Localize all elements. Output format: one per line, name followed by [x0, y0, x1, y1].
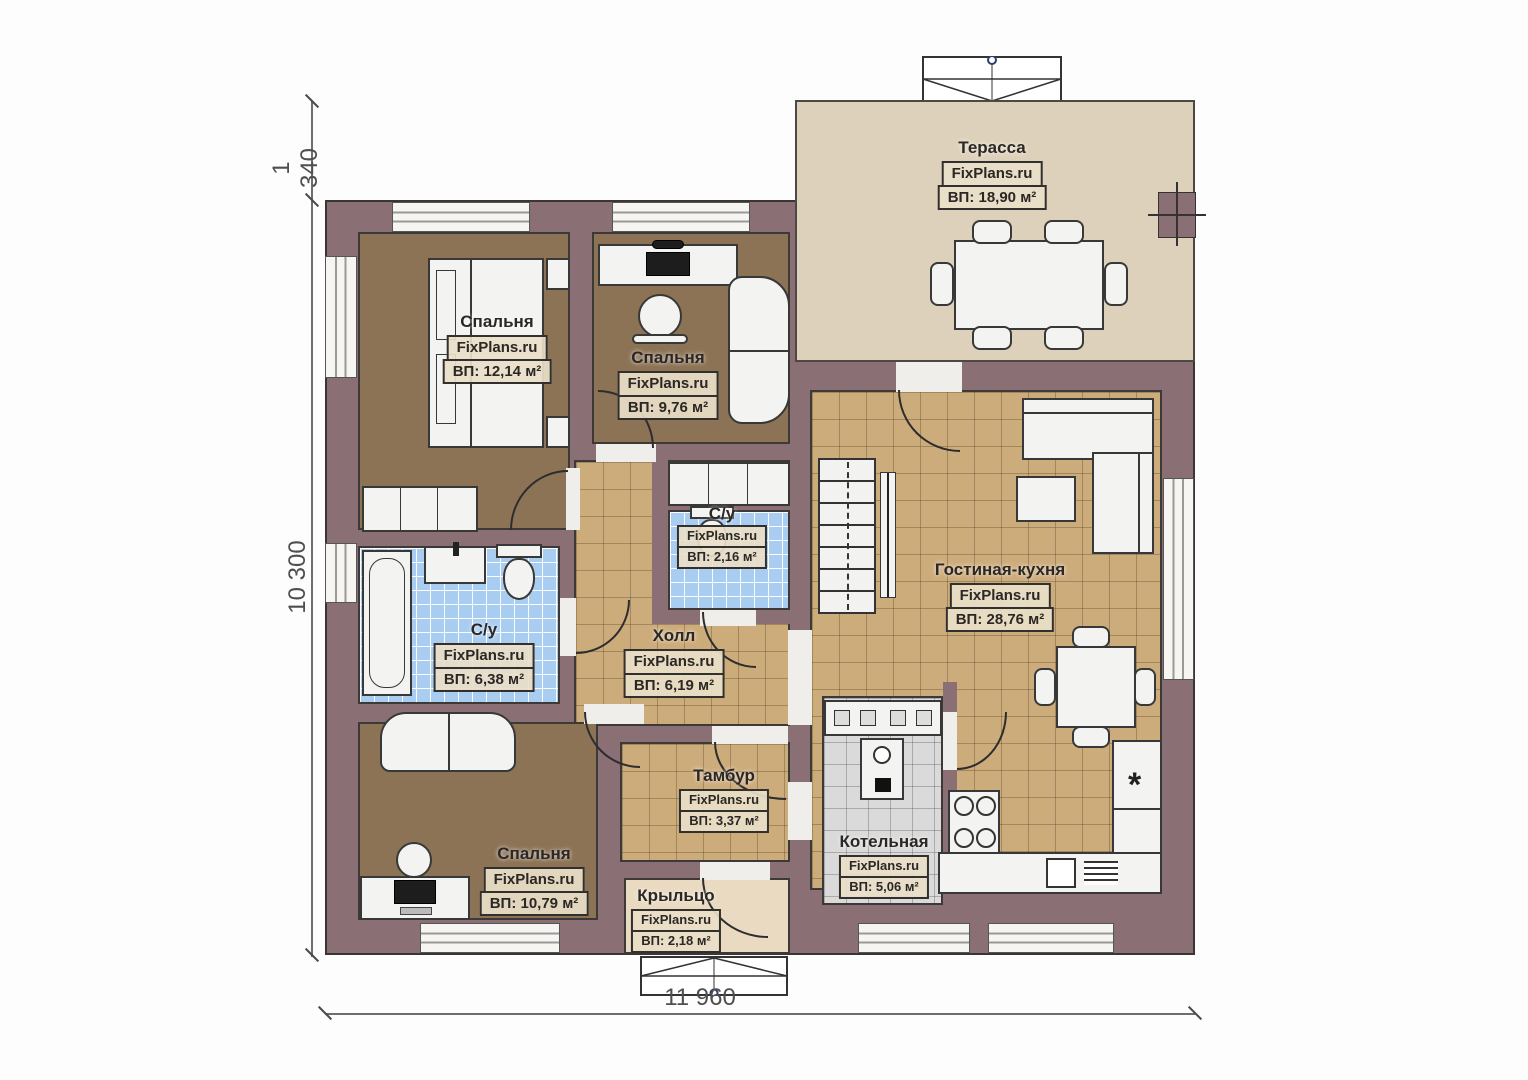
bathtub-inner: [369, 558, 405, 688]
window: [420, 923, 560, 953]
door-opening: [943, 712, 957, 770]
office-chair: [638, 294, 682, 338]
wall-segment: [652, 448, 668, 624]
terrace-chair: [1044, 220, 1084, 244]
terrace-chair: [930, 262, 954, 306]
room-area: ВП: 6,19 м²: [624, 673, 724, 699]
dish-rack: [1084, 861, 1118, 885]
room-label-hall: Холл FixPlans.ru ВП: 6,19 м²: [624, 626, 725, 698]
room-area: ВП: 12,14 м²: [443, 359, 552, 385]
door-opening: [896, 362, 962, 392]
dining-table: [1056, 646, 1136, 728]
fridge-symbol: *: [1128, 768, 1141, 802]
dining-chair: [1072, 626, 1110, 648]
window: [325, 256, 357, 378]
computer-monitor: [394, 880, 436, 904]
watermark: FixPlans.ru: [631, 909, 721, 932]
sofa-back-line: [1138, 454, 1140, 552]
room-label-bath2: С/у FixPlans.ru ВП: 2,16 м²: [677, 504, 767, 569]
room-name: Гостиная-кухня: [935, 560, 1065, 580]
room-label-bedroom2: Спальня FixPlans.ru ВП: 9,76 м²: [618, 348, 719, 420]
window: [858, 923, 970, 953]
wardrobe: [362, 486, 478, 532]
stove: [948, 790, 1000, 854]
room-area: ВП: 28,76 м²: [946, 607, 1055, 633]
nightstand: [546, 258, 570, 290]
room-area: ВП: 9,76 м²: [618, 395, 718, 421]
sofa-daybed: [728, 276, 790, 424]
terrace-chair: [1044, 326, 1084, 350]
counter-square: [860, 710, 876, 726]
passage-opening: [788, 782, 812, 840]
coffee-table: [1016, 476, 1076, 522]
terrace-chair: [972, 326, 1012, 350]
room-name: Терасса: [958, 138, 1025, 158]
counter-square: [916, 710, 932, 726]
watermark: FixPlans.ru: [677, 525, 767, 548]
room-label-living-kitchen: Гостиная-кухня FixPlans.ru ВП: 28,76 м²: [935, 560, 1065, 632]
sofa: [380, 712, 516, 772]
dimension-line-bottom: [325, 1013, 1195, 1015]
hall-closet: [668, 462, 790, 506]
watermark: FixPlans.ru: [624, 649, 725, 675]
window: [612, 202, 750, 232]
watermark: FixPlans.ru: [484, 867, 585, 893]
room-name: Крыльцо: [637, 886, 714, 906]
dimension-label-11960: 11 960: [630, 984, 770, 1012]
boiler-hatch: [875, 778, 891, 792]
terrace-chair: [1104, 262, 1128, 306]
printer: [646, 252, 690, 276]
dining-chair: [1034, 668, 1056, 706]
watermark: FixPlans.ru: [447, 335, 548, 361]
counter-divider: [1114, 808, 1160, 810]
room-name: Спальня: [631, 348, 704, 368]
toilet-tank: [496, 544, 542, 558]
terrace-stairs: [922, 56, 1062, 102]
window: [1163, 478, 1194, 680]
desk-chair: [396, 842, 432, 878]
watermark: FixPlans.ru: [839, 855, 929, 878]
printer-tray: [652, 240, 684, 249]
room-area: ВП: 10,79 м²: [480, 891, 589, 917]
floor-plan-canvas: 1 340 10 300 11 960: [0, 0, 1528, 1080]
window: [325, 543, 357, 603]
room-name: С/у: [709, 504, 735, 524]
watermark: FixPlans.ru: [950, 583, 1051, 609]
room-area: ВП: 3,37 м²: [679, 810, 769, 833]
sofa-back-line: [1024, 412, 1152, 414]
counter-square: [834, 710, 850, 726]
terrace-chair: [972, 220, 1012, 244]
stove-burner: [954, 796, 974, 816]
room-name: Тамбур: [693, 766, 755, 786]
room-name: Спальня: [460, 312, 533, 332]
nightstand: [546, 416, 570, 448]
dimension-label-1340: 1 340: [268, 138, 324, 198]
stove-burner: [976, 796, 996, 816]
room-area: ВП: 2,18 м²: [631, 930, 721, 953]
room-name: С/у: [471, 620, 497, 640]
passage-opening: [788, 630, 812, 725]
room-name: Котельная: [839, 832, 928, 852]
room-area: ВП: 18,90 м²: [938, 185, 1047, 211]
room-area: ВП: 5,06 м²: [839, 876, 929, 899]
room-label-porch: Крыльцо FixPlans.ru ВП: 2,18 м²: [631, 886, 721, 953]
staircase: [818, 458, 876, 614]
sink-tap: [453, 542, 459, 556]
window: [988, 923, 1114, 953]
door-opening: [560, 598, 576, 656]
kitchen-sink: [1046, 858, 1076, 888]
watermark: FixPlans.ru: [618, 371, 719, 397]
watermark: FixPlans.ru: [942, 161, 1043, 187]
stair-direction-line: [847, 462, 849, 610]
stove-burner: [976, 828, 996, 848]
boiler-gauge: [873, 746, 891, 764]
dining-chair: [1072, 726, 1110, 748]
room-name: Холл: [653, 626, 696, 646]
boiler-unit: [860, 738, 904, 800]
boiler-counter: [824, 700, 942, 736]
corner-sofa-seat: [1022, 398, 1154, 460]
room-label-bedroom3: Спальня FixPlans.ru ВП: 10,79 м²: [480, 844, 589, 916]
bathtub: [362, 550, 412, 696]
dimension-line-left: [311, 101, 313, 957]
stair-railing: [880, 472, 896, 598]
room-area: ВП: 2,16 м²: [677, 546, 767, 569]
room-area: ВП: 6,38 м²: [434, 667, 534, 693]
window: [392, 202, 530, 232]
keyboard: [400, 907, 432, 915]
stove-burner: [954, 828, 974, 848]
watermark: FixPlans.ru: [434, 643, 535, 669]
dimension-label-10300: 10 300: [284, 537, 312, 617]
toilet-bowl: [503, 558, 535, 600]
room-label-tambour: Тамбур FixPlans.ru ВП: 3,37 м²: [679, 766, 769, 833]
chair-base: [632, 334, 688, 344]
sofa-divider: [730, 350, 788, 352]
room-label-boiler: Котельная FixPlans.ru ВП: 5,06 м²: [839, 832, 929, 899]
watermark: FixPlans.ru: [679, 789, 769, 812]
room-label-bath1: С/у FixPlans.ru ВП: 6,38 м²: [434, 620, 535, 692]
dining-chair: [1134, 668, 1156, 706]
corner-sofa-seat: [1092, 452, 1154, 554]
sofa-divider: [448, 714, 450, 770]
room-label-bedroom1: Спальня FixPlans.ru ВП: 12,14 м²: [443, 312, 552, 384]
sink: [424, 546, 486, 584]
door-opening: [566, 468, 580, 530]
room-label-terrace: Терасса FixPlans.ru ВП: 18,90 м²: [938, 138, 1047, 210]
counter-square: [890, 710, 906, 726]
terrace-dining-table: [954, 240, 1104, 330]
terrace-column-axis-v: [1176, 182, 1178, 246]
railing-line: [887, 473, 889, 597]
room-name: Спальня: [497, 844, 570, 864]
